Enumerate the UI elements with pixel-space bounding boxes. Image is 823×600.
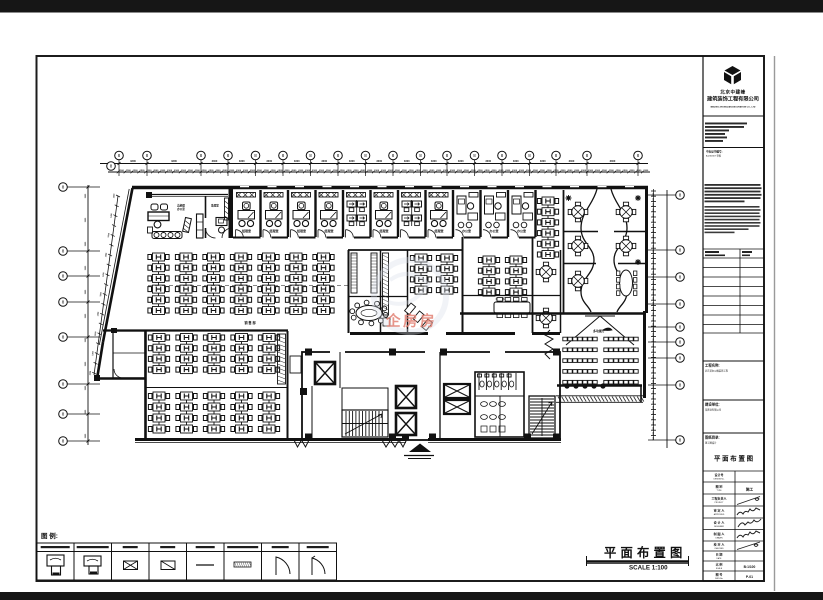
svg-text:1500: 1500 (561, 170, 567, 172)
svg-text:多功能厅: 多功能厅 (593, 328, 605, 333)
svg-text:TYPE: TYPE (717, 490, 723, 492)
svg-text:1500: 1500 (471, 170, 477, 172)
svg-text:1500: 1500 (153, 170, 159, 172)
svg-text:1500: 1500 (374, 170, 380, 172)
svg-text:经理室: 经理室 (242, 228, 251, 233)
svg-text:制 图 人: 制 图 人 (714, 531, 726, 536)
svg-text:1500: 1500 (450, 170, 456, 172)
svg-text:1500: 1500 (616, 170, 622, 172)
svg-text:1500: 1500 (512, 170, 518, 172)
svg-text:工程负责人: 工程负责人 (711, 496, 727, 501)
svg-text:1500: 1500 (609, 170, 615, 172)
svg-text:3300: 3300 (513, 159, 519, 163)
svg-text:1500: 1500 (347, 170, 353, 172)
svg-text:1500: 1500 (478, 170, 484, 172)
svg-text:DRAWN: DRAWN (715, 536, 723, 539)
svg-text:3300: 3300 (130, 159, 136, 163)
svg-text:1500: 1500 (436, 170, 442, 172)
svg-text:1500: 1500 (567, 170, 573, 172)
svg-text:1500: 1500 (202, 170, 208, 172)
svg-text:设 计 人: 设 计 人 (714, 519, 726, 524)
svg-text:1500: 1500 (250, 170, 256, 172)
svg-text:1500: 1500 (643, 170, 649, 172)
svg-text:企房房: 企房房 (385, 312, 437, 330)
svg-text:1500: 1500 (271, 170, 277, 172)
svg-text:3300: 3300 (349, 159, 355, 163)
svg-text:3300: 3300 (376, 159, 382, 163)
svg-text:1500: 1500 (485, 170, 491, 172)
svg-text:3300: 3300 (485, 159, 491, 163)
svg-text:1500: 1500 (209, 170, 215, 172)
svg-text:3300: 3300 (294, 159, 300, 163)
svg-text:1500: 1500 (623, 170, 629, 172)
svg-text:图 别: 图 别 (716, 484, 723, 489)
svg-text:1500: 1500 (367, 170, 373, 172)
svg-text:1500: 1500 (423, 170, 429, 172)
svg-text:1500: 1500 (360, 170, 366, 172)
svg-text:审 定 人: 审 定 人 (714, 508, 726, 513)
svg-text:3300: 3300 (212, 159, 218, 163)
svg-text:1500: 1500 (312, 170, 318, 172)
svg-text:办公室: 办公室 (462, 228, 471, 233)
svg-text:经理室: 经理室 (269, 228, 278, 233)
svg-text:BEIJING ZHONGJIAN DECORATION C: BEIJING ZHONGJIAN DECORATION CO., LTD (711, 106, 756, 109)
svg-text:SCALE 1:100: SCALE 1:100 (629, 565, 668, 572)
svg-text:1500: 1500 (588, 170, 594, 172)
svg-text:1500: 1500 (574, 170, 580, 172)
svg-text:1500: 1500 (243, 170, 249, 172)
svg-text:比 例: 比 例 (716, 562, 723, 567)
svg-text:1500: 1500 (519, 170, 525, 172)
svg-text:经理室: 经理室 (297, 228, 306, 233)
svg-text:1500: 1500 (140, 170, 146, 172)
svg-text:办公室: 办公室 (517, 228, 526, 233)
svg-text:SCALE: SCALE (716, 567, 723, 570)
svg-text:经理室: 经理室 (379, 228, 388, 233)
svg-text:DWG No.: DWG No. (715, 578, 724, 580)
svg-text:3300: 3300 (540, 159, 546, 163)
svg-text:销 售 部: 销 售 部 (244, 320, 256, 325)
svg-text:1500: 1500 (305, 170, 311, 172)
svg-text:平 面 布 置 图: 平 面 布 置 图 (714, 454, 753, 463)
svg-text:3300: 3300 (171, 159, 177, 163)
svg-text:1500: 1500 (285, 170, 291, 172)
svg-text:1500: 1500 (381, 170, 387, 172)
svg-text:3300: 3300 (266, 159, 272, 163)
svg-text:1500: 1500 (264, 170, 270, 172)
svg-text:1500: 1500 (340, 170, 346, 172)
svg-text:1500: 1500 (429, 170, 435, 172)
svg-text:1500: 1500 (630, 170, 636, 172)
svg-text:施工: 施工 (746, 487, 754, 492)
svg-text:1500: 1500 (278, 170, 284, 172)
svg-text:1500: 1500 (505, 170, 511, 172)
svg-text:1500: 1500 (416, 170, 422, 172)
svg-text:北京中建峰: 北京中建峰 (720, 89, 745, 96)
svg-text:平 面 布 置 图: 平 面 布 置 图 (604, 545, 683, 560)
svg-text:B:1/100: B:1/100 (744, 565, 756, 569)
svg-text:1500: 1500 (540, 170, 546, 172)
svg-text:图 例:: 图 例: (41, 531, 58, 540)
svg-text:1500: 1500 (319, 170, 325, 172)
svg-text:图 号: 图 号 (716, 572, 723, 577)
svg-text:3300: 3300 (321, 159, 327, 163)
svg-text:1500: 1500 (636, 170, 642, 172)
svg-text:1500: 1500 (402, 170, 408, 172)
svg-text:校 对 人: 校 对 人 (714, 542, 726, 547)
svg-text:1500: 1500 (554, 170, 560, 172)
svg-text:1500: 1500 (326, 170, 332, 172)
svg-text:1500: 1500 (581, 170, 587, 172)
svg-text:3300: 3300 (610, 159, 616, 163)
svg-text:1500: 1500 (147, 170, 153, 172)
svg-text:1500: 1500 (526, 170, 532, 172)
svg-text:1500: 1500 (333, 170, 339, 172)
svg-text:办公室: 办公室 (489, 228, 498, 233)
svg-text:P-01: P-01 (746, 575, 753, 579)
svg-text:1500: 1500 (457, 170, 463, 172)
svg-text:1500: 1500 (492, 170, 498, 172)
svg-text:APPROVED: APPROVED (714, 513, 725, 516)
svg-text:1500: 1500 (291, 170, 297, 172)
svg-text:建筑装饰工程有限公司: 建筑装饰工程有限公司 (707, 95, 759, 103)
svg-text:工程名称:: 工程名称: (705, 363, 720, 368)
svg-text:1500: 1500 (222, 170, 228, 172)
svg-text:1500: 1500 (354, 170, 360, 172)
svg-text:设计号: 设计号 (714, 472, 723, 477)
svg-text:1500: 1500 (160, 170, 166, 172)
svg-text:1500: 1500 (167, 170, 173, 172)
svg-text:3300: 3300 (404, 159, 410, 163)
svg-text:1500: 1500 (188, 170, 194, 172)
svg-text:3300: 3300 (569, 159, 575, 163)
svg-text:1500: 1500 (133, 170, 139, 172)
svg-text:3300: 3300 (431, 159, 437, 163)
svg-text:1500: 1500 (119, 170, 125, 172)
svg-text:1500: 1500 (498, 170, 504, 172)
svg-text:1500: 1500 (395, 170, 401, 172)
svg-text:1500: 1500 (595, 170, 601, 172)
svg-text:DESIGNER: DESIGNER (714, 526, 725, 528)
svg-text:1500: 1500 (216, 170, 222, 172)
svg-text:DESIGN No.: DESIGN No. (714, 479, 725, 481)
svg-text:中标证书编号:: 中标证书编号: (706, 150, 723, 154)
svg-text:CHECKED: CHECKED (714, 548, 724, 550)
svg-text:建设单位:: 建设单位: (705, 402, 720, 407)
svg-text:经理室: 经理室 (434, 228, 443, 233)
svg-text:助理室: 助理室 (211, 204, 219, 208)
svg-text:1500: 1500 (181, 170, 187, 172)
svg-text:1500: 1500 (409, 170, 415, 172)
svg-text:办公室: 办公室 (176, 207, 185, 211)
svg-text:DATE: DATE (717, 557, 723, 560)
svg-text:1500: 1500 (388, 170, 394, 172)
svg-text:1500: 1500 (236, 170, 242, 172)
svg-text:PROJECT: PROJECT (715, 502, 725, 504)
svg-text:1500: 1500 (443, 170, 449, 172)
svg-text:日 期: 日 期 (716, 552, 723, 557)
svg-text:1500: 1500 (126, 170, 132, 172)
svg-text:1500: 1500 (547, 170, 553, 172)
svg-text:1500: 1500 (229, 170, 235, 172)
svg-text:1500: 1500 (602, 170, 608, 172)
svg-text:3300: 3300 (458, 159, 464, 163)
svg-text:图纸目录:: 图纸目录: (705, 435, 720, 440)
svg-text:1500: 1500 (533, 170, 539, 172)
svg-text:1500: 1500 (174, 170, 180, 172)
svg-text:1500: 1500 (298, 170, 304, 172)
svg-text:1500: 1500 (195, 170, 201, 172)
svg-text:3300: 3300 (239, 159, 245, 163)
svg-text:1500: 1500 (257, 170, 263, 172)
svg-text:1500: 1500 (464, 170, 470, 172)
svg-text:经理室: 经理室 (324, 228, 333, 233)
